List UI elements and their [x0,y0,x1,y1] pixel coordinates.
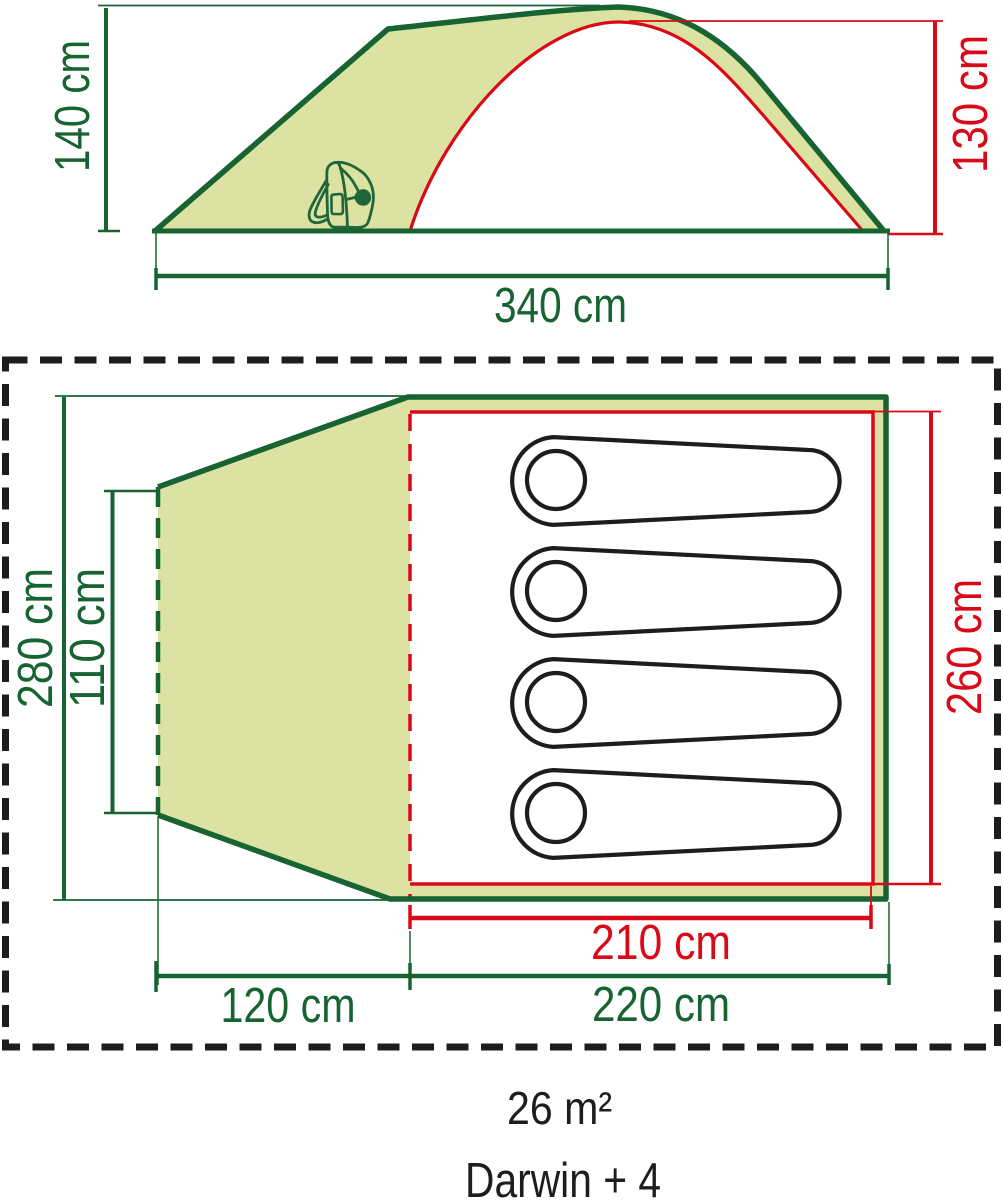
svg-text:140 cm: 140 cm [46,40,100,172]
svg-text:110 cm: 110 cm [61,568,115,708]
svg-text:26 m²: 26 m² [507,1082,612,1134]
svg-text:210 cm: 210 cm [591,916,731,970]
svg-text:280 cm: 280 cm [9,568,63,708]
svg-text:130 cm: 130 cm [944,35,998,173]
svg-text:120 cm: 120 cm [221,979,356,1033]
svg-text:260 cm: 260 cm [938,579,992,715]
svg-text:340 cm: 340 cm [494,279,627,333]
svg-text:Darwin + 4: Darwin + 4 [465,1154,661,1200]
svg-text:220 cm: 220 cm [592,978,730,1032]
